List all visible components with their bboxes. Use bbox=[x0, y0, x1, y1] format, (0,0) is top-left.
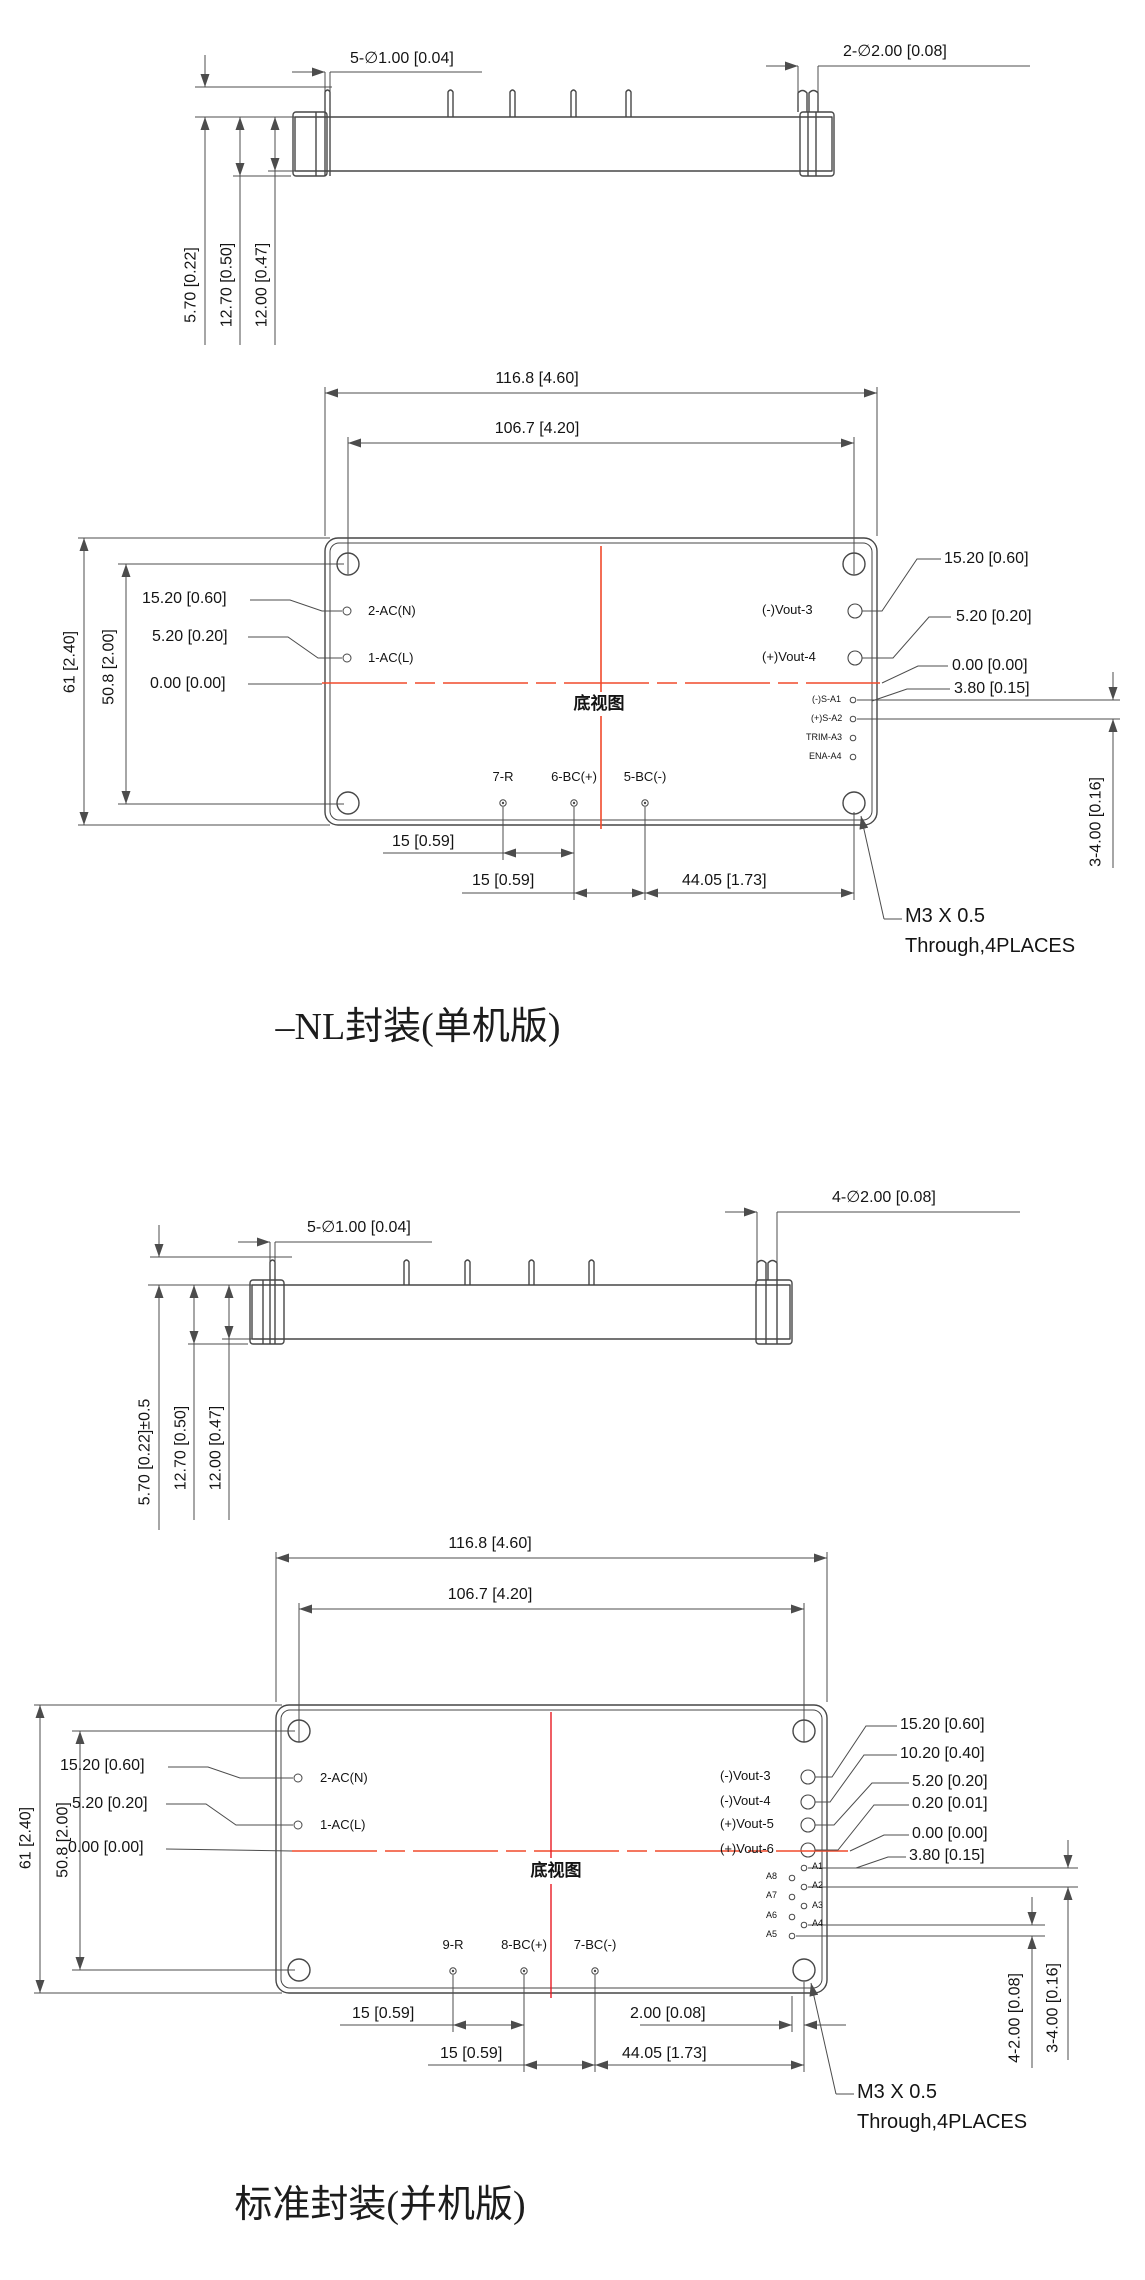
d1-pin-ac-l bbox=[343, 654, 351, 662]
d1-bottom-dim: 15 [0.59] bbox=[472, 873, 534, 890]
d2-pin-vout4 bbox=[801, 1795, 815, 1809]
d1-mounting-hole bbox=[843, 792, 865, 814]
d1-pin-label-s-a1: (-)S-A1 bbox=[812, 695, 841, 704]
d2-pin-label-ac-l: 1-AC(L) bbox=[320, 1818, 366, 1832]
d2-dim-large-pins: 4-∅2.00 [0.08] bbox=[832, 1190, 936, 1207]
d2-note-through: Through,4PLACES bbox=[857, 2112, 1027, 2133]
d2-title: 标准封装(并机版) bbox=[234, 2186, 525, 2226]
d1-pin-label-s-a2: (+)S-A2 bbox=[811, 714, 842, 723]
line-art bbox=[0, 0, 1145, 2280]
d2-pin-vout6 bbox=[801, 1843, 815, 1857]
d2-dim-height-outer: 61 [2.40] bbox=[19, 1807, 36, 1869]
d2-pin-label-ac-n: 2-AC(N) bbox=[320, 1771, 368, 1785]
d1-bottom-dim: 15 [0.59] bbox=[392, 834, 454, 851]
d2-pin-vout5 bbox=[801, 1818, 815, 1832]
d1-dim-total-height: 12.70 [0.50] bbox=[220, 243, 237, 328]
d2-pin-label-a6: A6 bbox=[766, 1911, 777, 1920]
d1-right-dim: 5.20 [0.20] bbox=[956, 609, 1032, 626]
d1-left-dim: 15.20 [0.60] bbox=[142, 591, 227, 608]
d1-pin-ac-n bbox=[343, 607, 351, 615]
d1-dim-height-outer: 61 [2.40] bbox=[63, 631, 80, 693]
d2-bottom-dim: 2.00 [0.08] bbox=[630, 2006, 706, 2023]
d2-right-dim: 5.20 [0.20] bbox=[912, 1774, 988, 1791]
d2-pin-label-a1: A1 bbox=[812, 1862, 823, 1871]
d2-pin-label-9r: 9-R bbox=[443, 1938, 464, 1952]
d2-bottom-dim: 44.05 [1.73] bbox=[622, 2046, 707, 2063]
d2-pin-ac-n bbox=[294, 1774, 302, 1782]
d2-dim-stagger: 4-2.00 [0.08] bbox=[1008, 1973, 1025, 2063]
d1-pin-label-7r: 7-R bbox=[493, 770, 514, 784]
drawing-sheet: 5-∅1.00 [0.04] 2-∅2.00 [0.08] 5.70 [0.22… bbox=[0, 0, 1145, 2280]
d1-dim-large-pins: 2-∅2.00 [0.08] bbox=[843, 44, 947, 61]
d1-view-label: 底视图 bbox=[574, 695, 625, 713]
d2-view-label: 底视图 bbox=[531, 1862, 582, 1880]
d1-dim-signal-pitch: 3-4.00 [0.16] bbox=[1089, 777, 1106, 867]
d2-pin-label-a2: A2 bbox=[812, 1881, 823, 1890]
d2-dim-pin-height: 5.70 [0.22]±0.5 bbox=[138, 1399, 155, 1506]
d1-note-through: Through,4PLACES bbox=[905, 936, 1075, 957]
d2-pin-label-a7: A7 bbox=[766, 1891, 777, 1900]
d1-pin-label-vout4: (+)Vout-4 bbox=[762, 650, 816, 664]
d1-right-dim: 15.20 [0.60] bbox=[944, 551, 1029, 568]
d2-pin-label-vout6: (+)Vout-6 bbox=[720, 1842, 774, 1856]
d1-mounting-hole bbox=[337, 792, 359, 814]
d1-pin-label-vout3: (-)Vout-3 bbox=[762, 603, 813, 617]
d2-plan-dims bbox=[34, 1552, 1078, 2094]
d2-dim-small-pins: 5-∅1.00 [0.04] bbox=[307, 1220, 411, 1237]
d2-bottom-dim: 15 [0.59] bbox=[440, 2046, 502, 2063]
d1-bottom-dim: 44.05 [1.73] bbox=[682, 873, 767, 890]
d2-pin-label-a3: A3 bbox=[812, 1901, 823, 1910]
d1-dim-width-outer: 116.8 [4.60] bbox=[495, 371, 578, 388]
d2-dim-width-outer: 116.8 [4.60] bbox=[448, 1536, 531, 1553]
d1-plan-dims bbox=[78, 387, 1120, 919]
d2-pin-label-a5: A5 bbox=[766, 1930, 777, 1939]
d1-side-dims bbox=[195, 55, 1030, 345]
d1-dim-width-holes: 106.7 [4.20] bbox=[495, 421, 580, 438]
d1-dim-height-holes: 50.8 [2.00] bbox=[102, 629, 119, 705]
d2-side-dims bbox=[148, 1212, 1020, 1530]
d1-dim-small-pins: 5-∅1.00 [0.04] bbox=[350, 51, 454, 68]
d1-pin-label-ena-a4: ENA-A4 bbox=[809, 752, 842, 761]
d2-a-pins bbox=[789, 1865, 807, 1939]
d2-pin-label-vout4: (-)Vout-4 bbox=[720, 1794, 771, 1808]
d1-pin-label-ac-n: 2-AC(N) bbox=[368, 604, 416, 618]
d1-pin-label-ac-l: 1-AC(L) bbox=[368, 651, 414, 665]
d2-right-dim: 0.20 [0.01] bbox=[912, 1796, 988, 1813]
d2-right-dim: 0.00 [0.00] bbox=[912, 1826, 988, 1843]
d1-pin-label-5bc: 5-BC(-) bbox=[624, 770, 667, 784]
d1-dim-pin-height: 5.70 [0.22] bbox=[184, 247, 201, 323]
d2-pin-label-7bc: 7-BC(-) bbox=[574, 1938, 617, 1952]
d2-side-view bbox=[250, 1260, 792, 1344]
d2-pin-ac-l bbox=[294, 1821, 302, 1829]
d2-pin-label-a8: A8 bbox=[766, 1872, 777, 1881]
d2-pin-label-8bc: 8-BC(+) bbox=[501, 1938, 547, 1952]
d2-dim-total-height: 12.70 [0.50] bbox=[174, 1406, 191, 1491]
d1-bottom-pins bbox=[500, 800, 648, 806]
d1-title: –NL封装(单机版) bbox=[276, 1008, 561, 1048]
d1-pin-vout4 bbox=[848, 651, 862, 665]
d1-right-dim: 3.80 [0.15] bbox=[954, 681, 1030, 698]
d2-right-dim: 15.20 [0.60] bbox=[900, 1717, 985, 1734]
d2-pin-vout3 bbox=[801, 1770, 815, 1784]
d2-left-dim: 5.20 [0.20] bbox=[72, 1796, 148, 1813]
d1-pin-label-trim-a3: TRIM-A3 bbox=[806, 733, 842, 742]
d2-dim-width-holes: 106.7 [4.20] bbox=[448, 1587, 533, 1604]
d2-dim-signal-pitch: 3-4.00 [0.16] bbox=[1046, 1963, 1063, 2053]
d1-side-view bbox=[293, 90, 834, 176]
d2-left-dim: 15.20 [0.60] bbox=[60, 1758, 145, 1775]
d2-bottom-dim: 15 [0.59] bbox=[352, 2006, 414, 2023]
d2-bottom-pins bbox=[450, 1968, 598, 1974]
d2-mounting-hole bbox=[793, 1959, 815, 1981]
d2-note-m3: M3 X 0.5 bbox=[857, 2082, 937, 2103]
d2-pin-label-vout5: (+)Vout-5 bbox=[720, 1817, 774, 1831]
d1-pin-vout3 bbox=[848, 604, 862, 618]
d1-centerlines bbox=[322, 546, 880, 829]
d1-dim-body-height: 12.00 [0.47] bbox=[255, 243, 272, 328]
d2-left-dim: 0.00 [0.00] bbox=[68, 1840, 144, 1857]
d1-left-dim: 5.20 [0.20] bbox=[152, 629, 228, 646]
d1-signal-pins bbox=[850, 697, 856, 760]
d2-dim-body-height: 12.00 [0.47] bbox=[209, 1406, 226, 1491]
d1-pin-label-6bc: 6-BC(+) bbox=[551, 770, 597, 784]
d2-right-dim: 3.80 [0.15] bbox=[909, 1848, 985, 1865]
d1-right-dim: 0.00 [0.00] bbox=[952, 658, 1028, 675]
d2-pin-label-a4: A4 bbox=[812, 1919, 823, 1928]
d1-left-dim: 0.00 [0.00] bbox=[150, 676, 226, 693]
d1-note-m3: M3 X 0.5 bbox=[905, 906, 985, 927]
d2-pin-label-vout3: (-)Vout-3 bbox=[720, 1769, 771, 1783]
d2-right-dim: 10.20 [0.40] bbox=[900, 1746, 985, 1763]
